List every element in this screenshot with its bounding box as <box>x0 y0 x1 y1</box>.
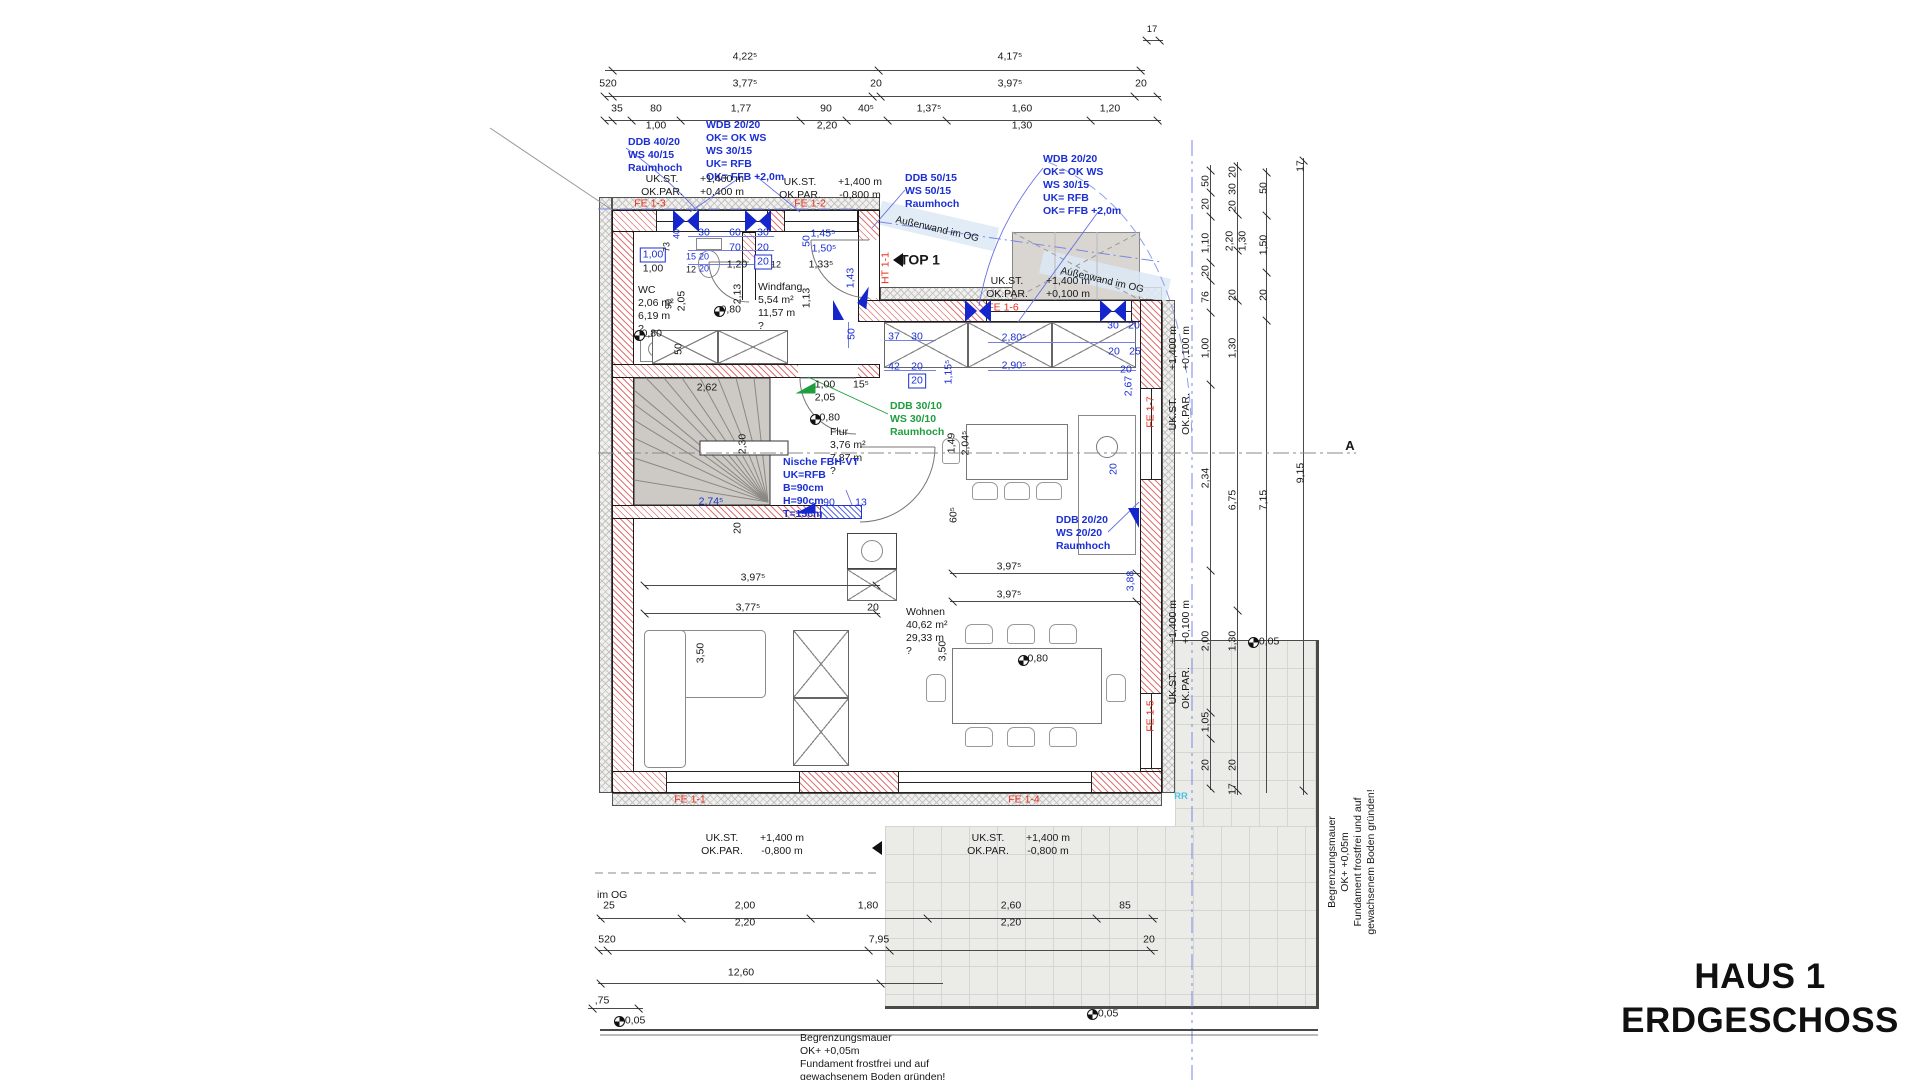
dim-label: 50 <box>672 343 685 355</box>
dim-label: 1,20 <box>1100 102 1120 115</box>
chair <box>965 727 993 747</box>
dim-label: 2,20 <box>735 916 755 929</box>
dim-label: 60⁵ <box>947 507 960 523</box>
dim-label: 20 <box>1120 363 1132 376</box>
window-axis-icon <box>745 210 771 232</box>
dim-label: 520 <box>598 933 616 946</box>
chair <box>1049 727 1077 747</box>
level-marker-icon <box>1018 655 1029 666</box>
level-marker-icon <box>810 414 821 425</box>
dim-label: 1,10 <box>1199 233 1212 253</box>
dim-line <box>605 96 1161 97</box>
dim-label: 20 <box>754 254 772 269</box>
note-begrenzungsmauer-bottom: Begrenzungsmauer OK+ +0,05m Fundament fr… <box>800 1032 945 1080</box>
door-label-ht1-1: HT 1-1 <box>879 252 892 284</box>
dim-line <box>644 585 880 586</box>
dim-label: +1,400 m -0,800 m <box>1026 832 1070 858</box>
top1-label: TOP 1 <box>900 251 940 268</box>
dim-label: 2,20 <box>1001 916 1021 929</box>
dim-label: 2,00 <box>1199 631 1212 651</box>
level-marker-icon <box>1248 637 1259 648</box>
note-begrenzungsmauer-right: Begrenzungsmauer OK+ +0,05m Fundament fr… <box>1326 789 1378 934</box>
dim-label: 20 <box>870 77 882 90</box>
dim-label: +1,400 m -0,800 m <box>838 176 882 202</box>
dim-label: 7,15 <box>1257 490 1270 510</box>
dim-label: 15 <box>686 251 696 262</box>
annotation-ddb-20: DDB 20/20 WS 20/20 Raumhoch <box>1056 514 1110 553</box>
wall-left <box>612 210 634 793</box>
dim-label: 35 <box>611 102 623 115</box>
dim-label: 85 <box>1119 899 1131 912</box>
dim-label: 1,13 <box>800 288 813 308</box>
kitchen-unit-3 <box>1052 322 1136 368</box>
wardrobe-lower <box>793 698 849 766</box>
wardrobe-upper <box>793 630 849 698</box>
drawing-title-line1: HAUS 1 <box>1570 955 1920 999</box>
dim-label: 40⁵ <box>858 102 874 115</box>
stove-circle <box>861 540 883 562</box>
terrace-right <box>1175 640 1318 826</box>
dim-label: UK.ST. OK.PAR. <box>986 275 1028 301</box>
dim-label: 2,67 <box>1122 376 1135 396</box>
dim-label: 2,04⁵ <box>959 431 972 456</box>
terrace-top-edge <box>1175 640 1318 641</box>
dim-label: 90 <box>823 496 835 509</box>
floorplan-canvas: 4,22⁵4,17⁵175203,77⁵203,97⁵2035801,77904… <box>0 0 1920 1080</box>
dim-label: 20 <box>1199 198 1212 210</box>
dim-label: 4,22⁵ <box>733 50 758 63</box>
dim-label: 1,00 <box>1199 338 1212 358</box>
dim-label: 20 <box>699 251 709 262</box>
dim-label: 20 <box>1135 77 1147 90</box>
dim-line <box>1237 162 1238 795</box>
dim-label: 20 <box>1143 933 1155 946</box>
level-marker-icon <box>614 1016 625 1027</box>
dim-label: 2,13 <box>731 284 744 304</box>
annotation-ddb-30: DDB 30/10 WS 30/10 Raumhoch <box>890 400 944 439</box>
dim-label: 1,60 <box>1012 102 1032 115</box>
dim-label: 20 <box>731 522 744 534</box>
dim-label: 2,34 <box>1199 468 1212 488</box>
dim-label: 4,17⁵ <box>998 50 1023 63</box>
section-marker-a: A <box>1345 438 1354 454</box>
chair <box>1007 624 1035 644</box>
dim-label: UK.ST. OK.PAR. <box>1167 393 1193 435</box>
dim-label: +1,400 m -0,800 m <box>760 832 804 858</box>
dim-label: 30 <box>911 330 923 343</box>
window-axis-icon <box>1100 300 1126 322</box>
dim-line <box>950 601 1140 602</box>
dim-label: 20 <box>1226 759 1239 771</box>
dim-label: 20 <box>911 360 923 373</box>
dim-line <box>588 1008 643 1009</box>
dim-label: 2,05 <box>675 291 688 311</box>
dim-label: 20 <box>757 241 769 254</box>
dim-label: 7,95 <box>869 933 889 946</box>
dim-line <box>598 983 943 984</box>
dim-label: 20 <box>1128 319 1140 332</box>
dim-label: 1,05 <box>1199 712 1212 732</box>
dim-label: 90 <box>663 299 674 309</box>
dim-label: 20 <box>1107 463 1120 475</box>
drawing-title-line2: ERDGESCHOSS <box>1570 999 1920 1043</box>
dim-line <box>605 120 1161 121</box>
marker-triangle-icon <box>1128 508 1139 528</box>
dim-label: 25 <box>603 899 615 912</box>
window-fe1-1 <box>666 771 800 793</box>
axis-label-rr: RR <box>1174 791 1188 803</box>
chair <box>1004 482 1030 500</box>
level-marker-icon <box>714 306 725 317</box>
window-fe1-4 <box>898 771 1092 793</box>
window-axis-icon <box>673 210 699 232</box>
dim-label: 50 <box>1199 175 1212 187</box>
dim-label: UK.ST. OK.PAR. <box>701 832 743 858</box>
window-label-fe1-1: FE 1-1 <box>674 793 706 806</box>
island-sink <box>1096 436 1118 458</box>
dim-label: 37 <box>888 330 900 343</box>
marker-triangle-icon <box>833 300 844 320</box>
dim-label: 20 <box>1108 345 1120 358</box>
direction-arrow-icon <box>872 841 882 855</box>
dim-label: 1,50 <box>1257 235 1270 255</box>
dim-label: 3,77⁵ <box>733 77 758 90</box>
dim-label: 20 <box>1199 759 1212 771</box>
dim-label: 50 <box>1257 182 1270 194</box>
dim-label: 2,00 <box>735 899 755 912</box>
og-strip-left <box>599 197 612 793</box>
window-label-fe1-6: FE 1-6 <box>987 301 1019 314</box>
dim-label: 20 <box>1199 265 1212 277</box>
boundary-lines <box>600 1030 1318 1035</box>
toilet-tank <box>696 238 722 250</box>
dim-label: +1,400 m +0,100 m <box>1167 326 1193 370</box>
hall-door-gap <box>798 365 858 377</box>
dim-label: 1,80 <box>858 899 878 912</box>
room-windfang: Windfang 5,54 m² 11,57 m ? <box>758 281 802 333</box>
dim-label: 42 <box>888 360 900 373</box>
dim-label: 2,74⁵ <box>699 495 724 508</box>
chair <box>926 674 946 702</box>
closet-2 <box>718 330 788 364</box>
terrace-bottom <box>885 826 1318 1008</box>
dim-label: 1,33⁵ <box>809 258 834 271</box>
direction-arrow-icon <box>893 253 903 267</box>
dim-label: 1,30 <box>1226 338 1239 358</box>
annotation-nische: Nische FBH-VT UK=RFB B=90cm H=90cm T=15c… <box>783 456 859 521</box>
dim-label: 76 <box>1199 291 1212 303</box>
dim-label: 1,00 <box>646 119 666 132</box>
dim-label: UK.ST. OK.PAR. <box>1167 667 1193 709</box>
dim-label: 20 <box>1257 289 1270 301</box>
chair <box>1106 674 1126 702</box>
dim-label: 1,77 <box>731 102 751 115</box>
chair <box>1049 624 1077 644</box>
dim-label: 1,30 <box>1236 231 1249 251</box>
dim-label: 1,49 <box>945 433 958 453</box>
dim-label: UK.ST. OK.PAR. <box>641 173 683 199</box>
dim-label: ,75 <box>595 994 610 1007</box>
dim-label: 2,30 <box>736 434 749 454</box>
dim-line <box>605 70 1145 71</box>
dim-label: 70 <box>729 241 741 254</box>
dim-label: 3,97⁵ <box>997 560 1022 573</box>
dim-label: 2,90⁵ <box>1002 359 1027 372</box>
dim-label: 90 <box>820 102 832 115</box>
dim-label: 1,00 <box>815 378 835 391</box>
window-label-fe1-4: FE 1-4 <box>1008 793 1040 806</box>
dim-label: UK.ST. OK.PAR. <box>967 832 1009 858</box>
dim-label: 12 <box>771 259 781 270</box>
dim-label: 12,60 <box>728 966 754 979</box>
dim-label: 20 <box>699 263 709 274</box>
chair <box>972 482 998 500</box>
dim-label: 1,50⁵ <box>812 242 837 255</box>
dim-label: 60 <box>729 226 741 239</box>
dim-label: 12 <box>686 264 696 275</box>
dim-label: 3,50 <box>694 643 707 663</box>
annotation-wdb-right: WDB 20/20 OK= OK WS WS 30/15 UK= RFB OK=… <box>1043 153 1121 218</box>
boundary-wall-right <box>1316 640 1319 1008</box>
window-label-fe1-3: FE 1-3 <box>634 197 666 210</box>
level-marker-icon <box>1087 1009 1098 1020</box>
chair <box>1007 727 1035 747</box>
window-axis-icon <box>965 300 991 322</box>
window-label-fe1-2: FE 1-2 <box>794 197 826 210</box>
drawing-title: HAUS 1 ERDGESCHOSS <box>1570 955 1920 1043</box>
dim-label: 1,15⁵ <box>942 360 955 385</box>
dim-label: 520 <box>599 77 617 90</box>
dim-line <box>1266 168 1267 793</box>
dim-line <box>598 950 1158 951</box>
dim-label: 6,75 <box>1226 490 1239 510</box>
dim-label: 3,97⁵ <box>997 588 1022 601</box>
dim-label: 2,60 <box>1001 899 1021 912</box>
dim-label: 1,43 <box>844 268 857 288</box>
dim-label: 25 <box>1129 345 1141 358</box>
window-label-fe1-7: FE 1-7 <box>1144 396 1157 428</box>
staircase <box>634 378 788 505</box>
chair <box>1036 482 1062 500</box>
dim-label: 73 <box>661 242 672 252</box>
chair <box>965 624 993 644</box>
dim-label: 2,80⁵ <box>1002 331 1027 344</box>
dim-label: 30 <box>1226 183 1239 195</box>
dim-label: 80 <box>650 102 662 115</box>
window-label-fe1-5: FE 1-5 <box>1144 700 1157 732</box>
level-marker-icon <box>634 330 645 341</box>
dim-line <box>644 613 880 614</box>
dim-label: 2,20 <box>817 119 837 132</box>
dim-label: 1,30 <box>1012 119 1032 132</box>
dim-label: 50 <box>800 235 813 247</box>
dim-label: 1,20 <box>727 258 747 271</box>
dim-label: 30 <box>698 226 710 239</box>
dim-label: 1,45⁵ <box>811 227 836 240</box>
dim-label: 15⁵ <box>853 378 869 391</box>
dim-label: 1,37⁵ <box>917 102 942 115</box>
dim-label: 17 <box>1147 24 1158 36</box>
dim-label: 1,00 <box>643 262 663 275</box>
dim-label: +1,400 m +0,400 m <box>700 173 744 199</box>
dim-label: 9,15 <box>1294 463 1307 483</box>
dim-label: 1,30 <box>1226 631 1239 651</box>
dim-label: +1,400 m +0,100 m <box>1167 600 1193 644</box>
dim-label: 3,50 <box>936 641 949 661</box>
marker-triangle-icon <box>796 503 816 514</box>
annotation-ddb-40: DDB 40/20 WS 40/15 Raumhoch <box>628 136 682 175</box>
annotation-ddb-50: DDB 50/15 WS 50/15 Raumhoch <box>905 172 959 211</box>
dim-label: 3,97⁵ <box>998 77 1023 90</box>
dim-label: 2,05 <box>815 391 835 404</box>
dim-label: 3,97⁵ <box>741 571 766 584</box>
dining-table <box>966 424 1068 480</box>
sofa-chaise <box>644 630 686 768</box>
dim-label: 3,77⁵ <box>736 601 761 614</box>
dim-label: 13 <box>855 496 867 509</box>
dim-label: 20 <box>908 373 926 388</box>
dim-label: 2,62 <box>697 381 717 394</box>
dim-line <box>950 573 1140 574</box>
og-strip-right <box>1162 300 1175 793</box>
dim-label: 50 <box>845 328 858 340</box>
marker-triangle-icon <box>796 383 816 394</box>
